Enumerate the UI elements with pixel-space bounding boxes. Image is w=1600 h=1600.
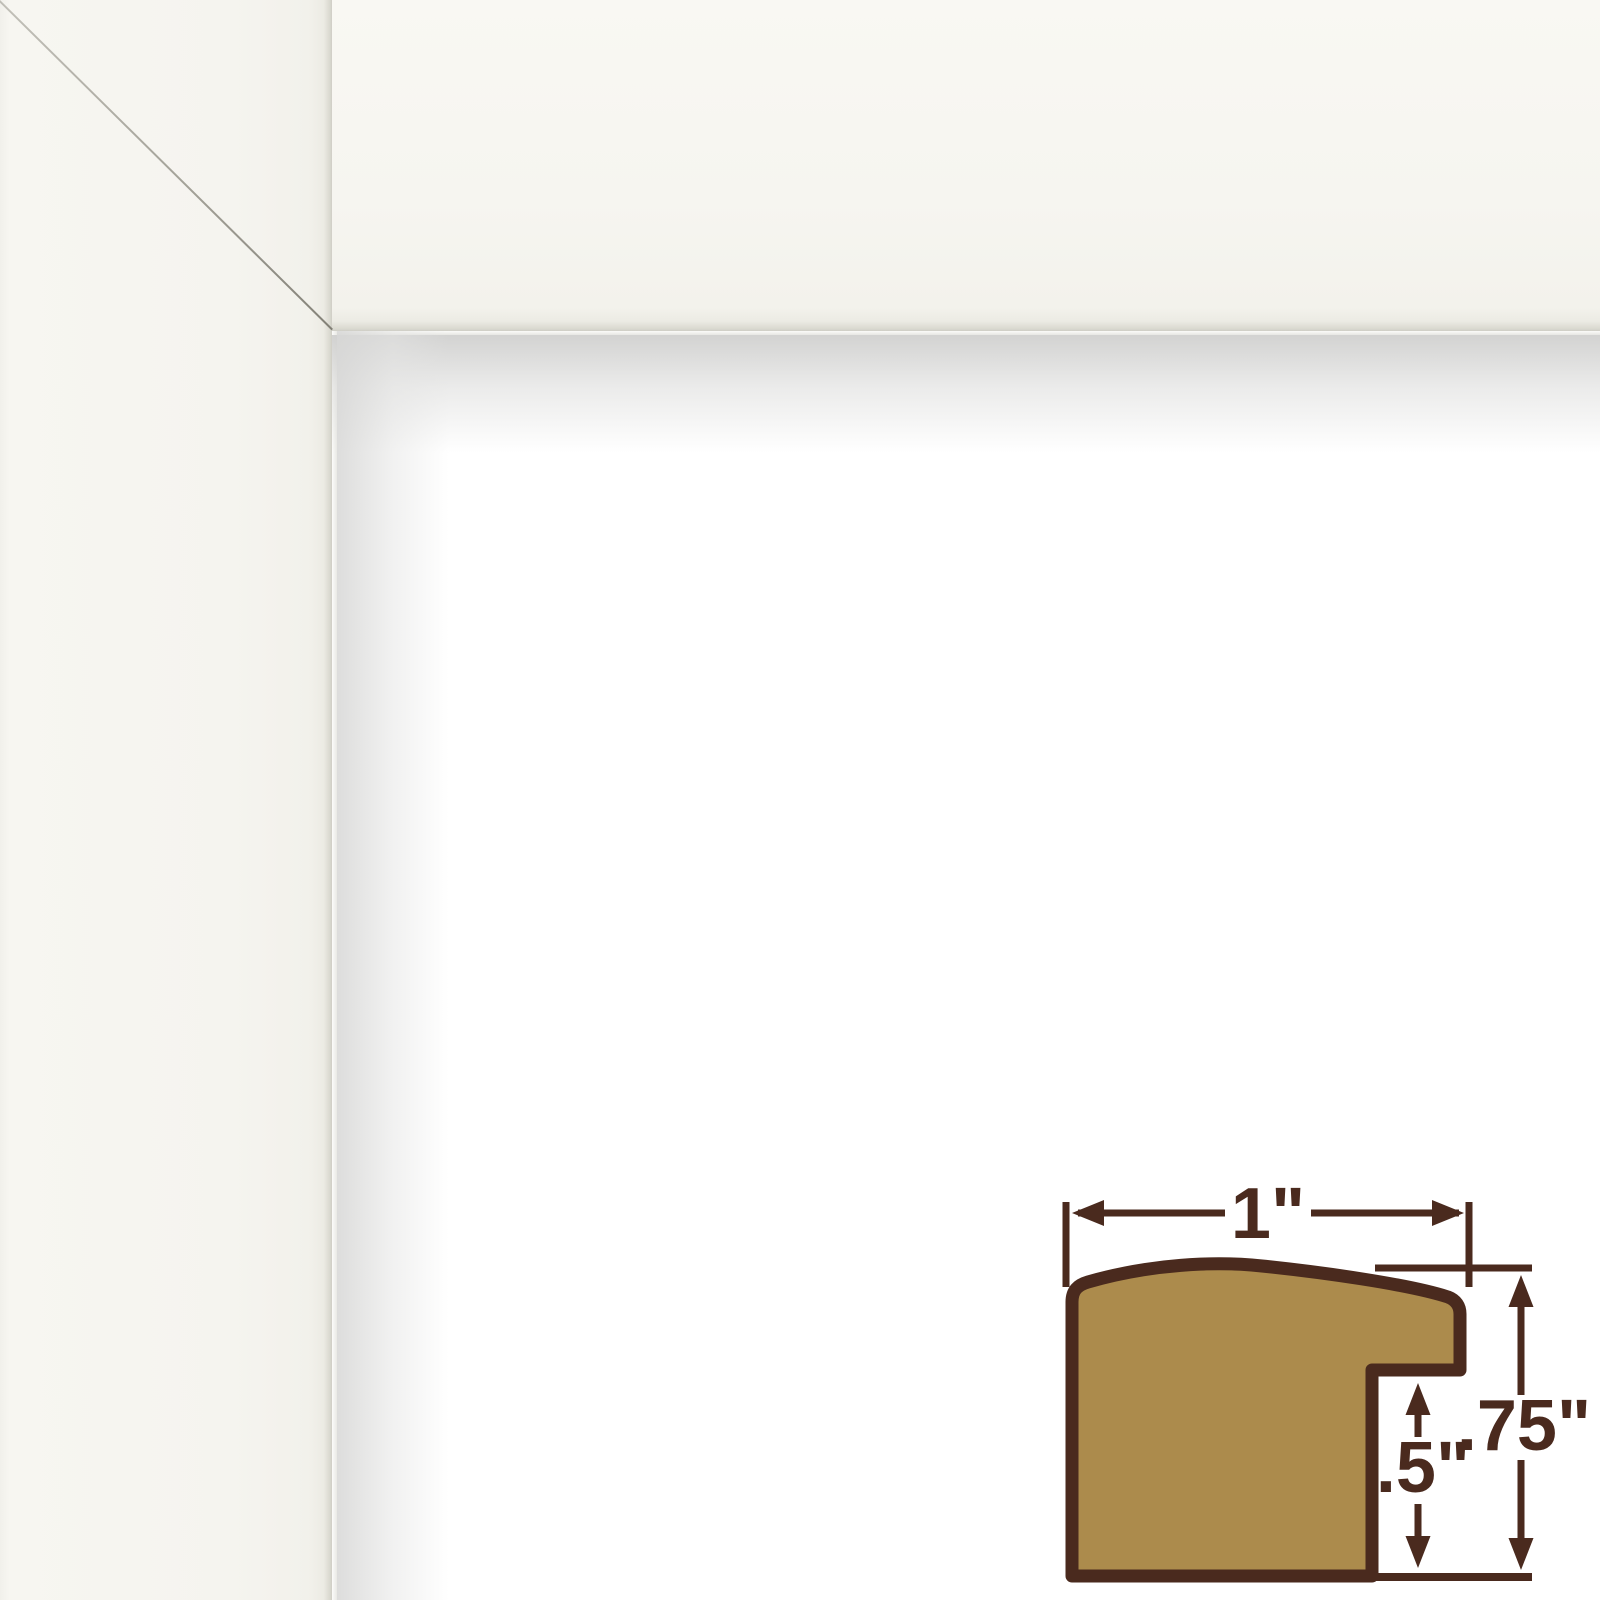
height-ext-line-top	[1375, 1265, 1532, 1272]
arrow-up-icon	[1406, 1383, 1431, 1415]
width-ext-line-left	[1063, 1202, 1070, 1287]
moulding-profile-shape	[1072, 1264, 1460, 1576]
width-label: 1"	[1231, 1174, 1305, 1254]
arrow-down-icon	[1509, 1538, 1534, 1570]
height-label: .75"	[1457, 1386, 1591, 1466]
profile-diagram: 1" .75" .5"	[0, 0, 1600, 1600]
width-ext-line-right	[1466, 1202, 1473, 1287]
height-dim-line-upper	[1518, 1303, 1525, 1395]
arrow-up-icon	[1509, 1275, 1534, 1307]
arrow-left-icon	[1072, 1200, 1104, 1226]
arrow-down-icon	[1406, 1536, 1431, 1568]
bottom-ext-line	[1310, 1573, 1532, 1581]
product-image: 1" .75" .5"	[0, 0, 1600, 1600]
height-dim-line-lower	[1518, 1460, 1525, 1542]
rabbet-depth-label: .5"	[1376, 1428, 1470, 1508]
arrow-right-icon	[1432, 1200, 1464, 1226]
